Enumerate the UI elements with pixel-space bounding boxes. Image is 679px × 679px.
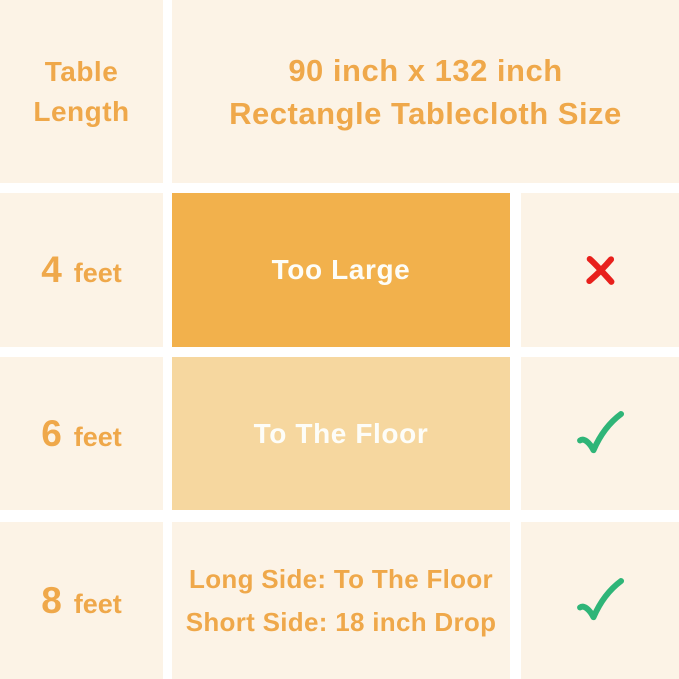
table-length-label-line2: Length [33, 92, 129, 132]
row-8ft-fit-cell: Long Side: To The Floor Short Side: 18 i… [172, 522, 510, 679]
row-4ft-length-label: 4 feet [41, 249, 122, 291]
length-value: 8 [41, 580, 62, 622]
row-4ft-verdict-cell [521, 193, 679, 347]
row-4ft-fit-box: Too Large [172, 193, 510, 347]
row-6ft-verdict-cell [521, 357, 679, 510]
row-8ft-fit-line2: Short Side: 18 inch Drop [186, 601, 497, 644]
tablecloth-size-chart: Table Length 90 inch x 132 inch Rectangl… [0, 0, 679, 679]
length-unit: feet [74, 422, 122, 453]
row-8ft-fit-line1: Long Side: To The Floor [189, 558, 493, 601]
row-6ft-length-label: 6 feet [41, 413, 122, 455]
row-4ft-length-cell: 4 feet [0, 193, 163, 347]
row-8ft-length-cell: 8 feet [0, 522, 163, 679]
length-value: 4 [41, 249, 62, 291]
row-8ft-verdict-cell [521, 522, 679, 679]
chart-title-line1: 90 inch x 132 inch [288, 49, 562, 92]
length-value: 6 [41, 413, 62, 455]
check-icon [573, 407, 627, 461]
header-title-cell: 90 inch x 132 inch Rectangle Tablecloth … [172, 0, 679, 183]
table-length-label-line1: Table [45, 52, 119, 92]
cross-icon [580, 251, 620, 289]
length-unit: feet [74, 258, 122, 289]
row-4ft-fit-label: Too Large [272, 254, 411, 286]
chart-title-line2: Rectangle Tablecloth Size [229, 92, 622, 135]
row-6ft-length-cell: 6 feet [0, 357, 163, 510]
row-6ft-fit-box: To The Floor [172, 357, 510, 510]
length-unit: feet [74, 589, 122, 620]
header-table-length-cell: Table Length [0, 0, 163, 183]
row-8ft-length-label: 8 feet [41, 580, 122, 622]
check-icon [573, 574, 627, 628]
row-6ft-fit-label: To The Floor [254, 418, 429, 450]
